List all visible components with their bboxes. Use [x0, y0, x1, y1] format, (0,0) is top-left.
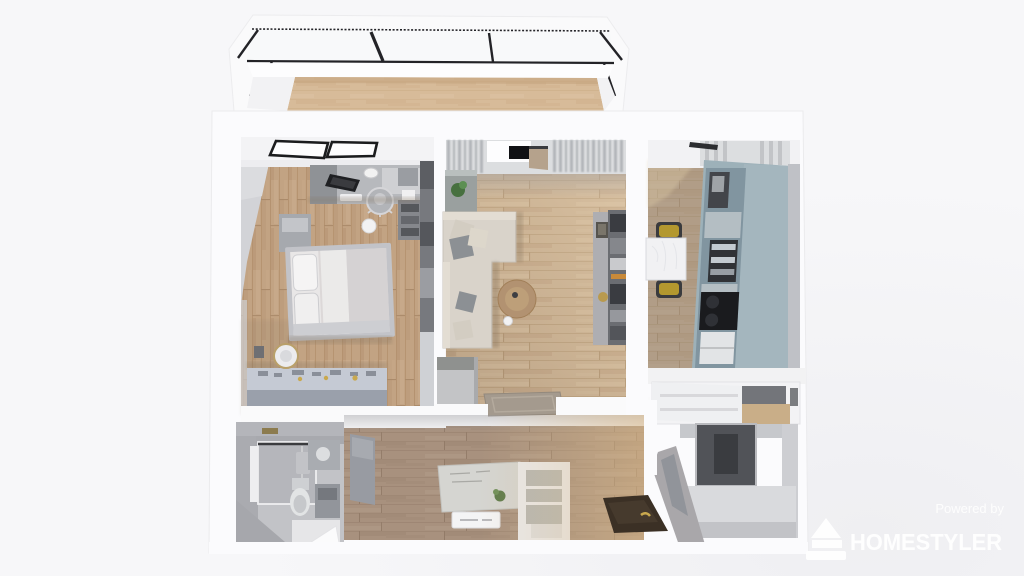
svg-text:HOMESTYLER: HOMESTYLER — [850, 529, 1002, 555]
svg-text:Powered by: Powered by — [935, 501, 1004, 516]
